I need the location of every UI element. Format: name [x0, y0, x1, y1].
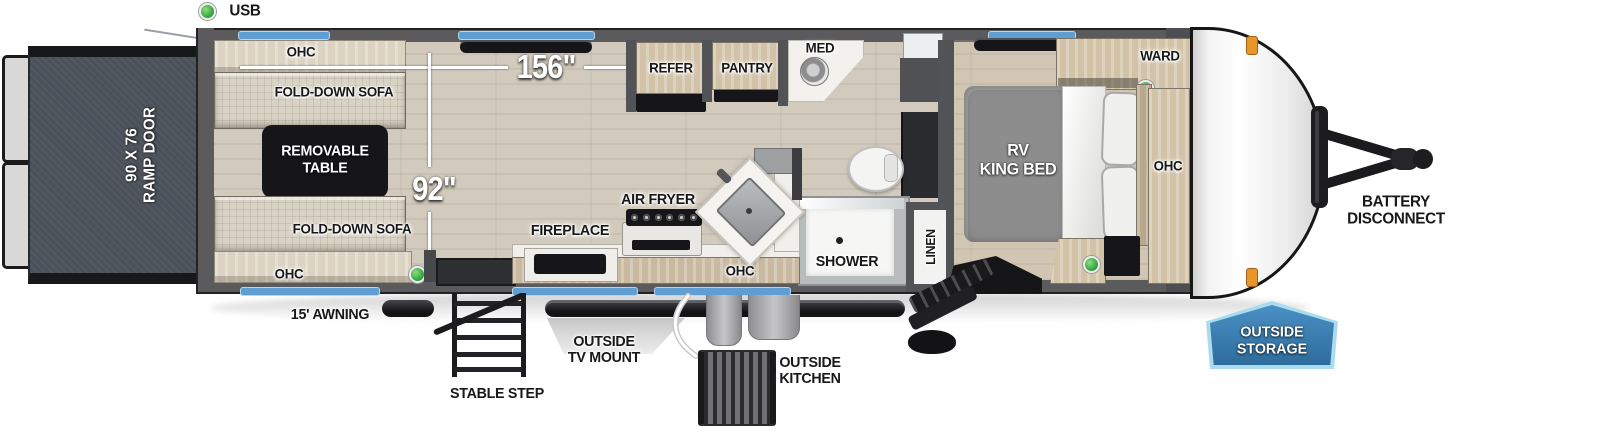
bed-blanket — [964, 86, 1066, 242]
usb-legend-icon — [199, 3, 216, 20]
burner-icon — [631, 214, 638, 221]
entry-step-base — [908, 330, 956, 354]
bedroom-cabinet — [1104, 236, 1140, 276]
tv-mount-shadow — [547, 318, 685, 354]
step-rung — [454, 352, 522, 357]
usb-legend-label: USB — [229, 2, 260, 19]
bath-upper-cabinet — [903, 33, 943, 61]
bath-pocket-door — [901, 112, 943, 198]
sink-drain-icon — [746, 208, 752, 214]
garage-ohc-bottom — [214, 251, 412, 283]
fireplace-insert — [534, 254, 606, 274]
burner-icon — [655, 214, 662, 221]
ramp-fold-line-top — [144, 29, 200, 40]
refer-cabinet — [636, 42, 704, 94]
ramp-door — [28, 46, 200, 284]
marker-light-icon — [1246, 36, 1258, 55]
fold-down-sofa-top — [214, 72, 406, 129]
oven-door — [632, 240, 690, 250]
burner-icon — [666, 214, 673, 221]
burner-icon — [690, 214, 697, 221]
kitchen-partition — [702, 40, 712, 102]
width-dim-line-top — [428, 53, 431, 167]
burner-icon — [678, 214, 685, 221]
garage-tv — [460, 40, 592, 53]
length-dim-line-right — [584, 66, 628, 69]
toilet-seat-icon — [884, 154, 898, 182]
shower-drain-icon — [836, 237, 843, 244]
kitchen-wall — [626, 40, 636, 112]
window-strip — [458, 31, 595, 40]
burner-icon — [643, 214, 650, 221]
bedroom-ohc — [1148, 88, 1190, 284]
cooktop — [626, 209, 702, 226]
shower-glass — [800, 198, 904, 209]
pantry-cabinet — [712, 42, 780, 90]
entry-mat — [436, 258, 516, 286]
marker-light-icon — [1246, 268, 1258, 287]
bath-bedroom-wall — [938, 40, 954, 216]
length-dim-line-left — [240, 66, 508, 69]
stable-step-label: STABLE STEP — [450, 386, 544, 402]
hitch-icon — [1305, 98, 1437, 222]
portable-grill-icon — [698, 350, 776, 426]
bath-sink-icon — [800, 57, 829, 86]
range-body — [622, 222, 702, 256]
rv-floorplan: USB 90 X 76 RAMP DOOR OHC FOLD-DOWN SOFA… — [0, 0, 1600, 433]
linen-closet — [914, 210, 946, 284]
entry-door-frame — [424, 250, 436, 282]
rear-wall — [196, 28, 214, 292]
pantry-wall — [778, 40, 788, 106]
shower-pan — [806, 208, 894, 276]
removable-table — [262, 125, 388, 198]
window-strip — [238, 31, 330, 40]
awning-roll — [382, 300, 434, 317]
fold-down-sofa-bottom — [214, 196, 406, 253]
drain-pipe — [748, 295, 800, 340]
window-strip — [240, 287, 380, 296]
bedroom-tv — [974, 38, 1068, 51]
bed-sheet-band — [1062, 86, 1106, 244]
usb-port-dot — [1083, 256, 1100, 273]
kitchen-bath-wall — [792, 148, 802, 200]
step-rung — [454, 367, 522, 372]
window-strip — [512, 287, 638, 296]
outside-kitchen-label: OUTSIDE KITCHEN — [779, 355, 840, 387]
step-rung — [454, 335, 522, 340]
